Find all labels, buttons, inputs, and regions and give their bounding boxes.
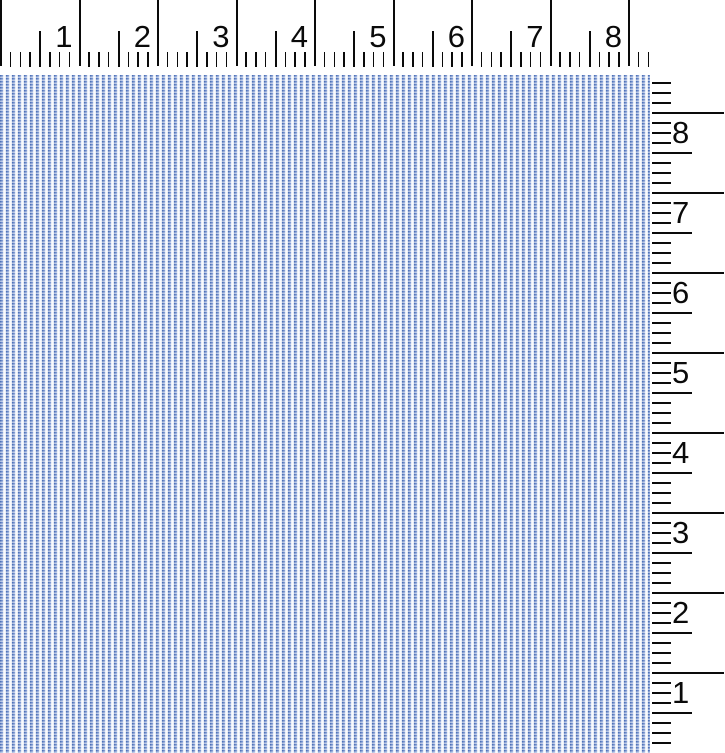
ruler-number-right-8: 8 xyxy=(672,117,689,148)
ruler-number-top-4: 4 xyxy=(270,21,308,52)
ruler-tick xyxy=(638,52,640,67)
ruler-tick xyxy=(461,52,463,67)
ruler-tick xyxy=(652,422,671,424)
ruler-tick xyxy=(652,262,671,264)
ruler-tick xyxy=(652,382,671,384)
ruler-tick xyxy=(652,392,692,394)
ruler-number-right-3: 3 xyxy=(672,517,689,548)
ruler-tick xyxy=(652,302,671,304)
ruler-tick xyxy=(652,612,671,614)
ruler-tick xyxy=(652,152,692,154)
ruler-tick xyxy=(599,52,601,67)
ruler-tick xyxy=(236,0,238,66)
ruler-tick xyxy=(652,592,724,594)
ruler-tick xyxy=(652,462,671,464)
ruler-tick xyxy=(652,632,692,634)
ruler-tick xyxy=(167,52,169,67)
ruler-tick xyxy=(652,492,671,494)
ruler-tick xyxy=(652,412,671,414)
ruler-tick xyxy=(652,692,671,694)
ruler-tick xyxy=(216,52,218,67)
ruler-tick xyxy=(652,402,671,404)
ruler-tick xyxy=(652,362,671,364)
ruler-number-top-7: 7 xyxy=(506,21,544,52)
ruler-tick xyxy=(226,52,228,67)
ruler-tick xyxy=(652,342,671,344)
ruler-tick xyxy=(579,52,581,67)
ruler-tick xyxy=(652,552,692,554)
ruler-tick xyxy=(652,182,671,184)
ruler-tick xyxy=(652,712,692,714)
ruler-tick xyxy=(652,202,671,204)
ruler-tick xyxy=(652,192,724,194)
ruler-tick xyxy=(652,92,671,94)
ruler-number-top-3: 3 xyxy=(192,21,230,52)
ruler-number-right-7: 7 xyxy=(672,197,689,228)
ruler-tick xyxy=(652,452,671,454)
ruler-tick xyxy=(652,252,671,254)
ruler-tick xyxy=(569,52,571,67)
ruler-tick xyxy=(652,112,724,114)
ruler-vertical-inches: 87654321 xyxy=(652,75,725,753)
ruler-tick xyxy=(137,52,139,67)
ruler-tick xyxy=(324,52,326,67)
ruler-tick xyxy=(652,742,671,744)
ruler-tick xyxy=(334,52,336,67)
ruler-tick xyxy=(245,52,247,67)
ruler-tick xyxy=(157,0,159,66)
ruler-tick xyxy=(500,52,502,67)
ruler-tick xyxy=(652,322,671,324)
ruler-tick xyxy=(343,52,345,67)
ruler-number-right-5: 5 xyxy=(672,357,689,388)
ruler-number-top-8: 8 xyxy=(584,21,622,52)
ruler-tick xyxy=(88,52,90,67)
ruler-tick xyxy=(652,642,671,644)
ruler-tick xyxy=(652,562,671,564)
ruler-tick xyxy=(652,292,671,294)
ruler-tick xyxy=(652,482,671,484)
ruler-tick xyxy=(652,702,671,704)
ruler-tick xyxy=(49,52,51,67)
ruler-tick xyxy=(59,52,61,67)
ruler-tick xyxy=(285,52,287,67)
ruler-tick xyxy=(652,502,671,504)
ruler-tick xyxy=(652,442,671,444)
ruler-tick xyxy=(520,52,522,67)
ruler-tick xyxy=(652,232,692,234)
ruler-tick xyxy=(652,82,671,84)
ruler-tick xyxy=(652,132,671,134)
ruler-tick xyxy=(412,52,414,67)
ruler-tick xyxy=(652,102,671,104)
ruler-tick xyxy=(69,52,71,67)
ruler-tick xyxy=(628,0,630,66)
ruler-tick xyxy=(618,52,620,67)
ruler-tick xyxy=(108,52,110,67)
ruler-tick xyxy=(481,52,483,67)
fabric-swatch xyxy=(0,75,650,753)
ruler-tick xyxy=(422,52,424,67)
ruler-tick xyxy=(442,52,444,67)
ruler-tick xyxy=(540,52,542,67)
ruler-tick xyxy=(128,52,130,67)
ruler-tick xyxy=(652,122,671,124)
ruler-tick xyxy=(0,0,2,66)
ruler-tick xyxy=(451,52,453,67)
ruler-number-right-2: 2 xyxy=(672,597,689,628)
ruler-tick xyxy=(206,52,208,67)
ruler-tick xyxy=(491,52,493,67)
ruler-tick xyxy=(652,432,724,434)
ruler-tick xyxy=(363,52,365,67)
ruler-number-top-2: 2 xyxy=(113,21,151,52)
ruler-tick xyxy=(652,622,671,624)
ruler-tick xyxy=(147,52,149,67)
ruler-tick xyxy=(652,512,724,514)
ruler-tick xyxy=(186,52,188,67)
ruler-tick xyxy=(652,312,692,314)
ruler-tick xyxy=(652,732,671,734)
ruler-number-right-6: 6 xyxy=(672,277,689,308)
ruler-tick xyxy=(652,652,671,654)
ruler-tick xyxy=(652,722,671,724)
ruler-tick xyxy=(471,0,473,66)
ruler-number-top-5: 5 xyxy=(349,21,387,52)
ruler-tick xyxy=(652,662,671,664)
ruler-tick xyxy=(652,522,671,524)
ruler-number-top-1: 1 xyxy=(35,21,73,52)
ruler-tick xyxy=(652,212,671,214)
ruler-tick xyxy=(652,602,671,604)
ruler-tick xyxy=(177,52,179,67)
ruler-tick xyxy=(648,52,650,67)
ruler-tick xyxy=(294,52,296,67)
ruler-tick xyxy=(79,0,81,66)
ruler-tick xyxy=(29,52,31,67)
ruler-tick xyxy=(652,222,671,224)
ruler-tick xyxy=(10,52,12,67)
ruler-tick xyxy=(652,172,671,174)
ruler-tick xyxy=(98,52,100,67)
ruler-tick xyxy=(652,472,692,474)
ruler-tick xyxy=(20,52,22,67)
fabric-swatch-photo: 12345678 87654321 xyxy=(0,0,725,753)
ruler-horizontal-inches: 12345678 xyxy=(0,0,652,70)
ruler-tick xyxy=(652,272,724,274)
ruler-tick xyxy=(652,332,671,334)
ruler-tick xyxy=(652,142,671,144)
ruler-number-right-4: 4 xyxy=(672,437,689,468)
ruler-tick xyxy=(265,52,267,67)
ruler-tick xyxy=(652,542,671,544)
ruler-number-right-1: 1 xyxy=(672,677,689,708)
ruler-tick xyxy=(652,672,724,674)
ruler-tick xyxy=(652,282,671,284)
ruler-tick xyxy=(530,52,532,67)
ruler-tick xyxy=(314,0,316,66)
ruler-tick xyxy=(652,372,671,374)
ruler-tick xyxy=(652,682,671,684)
ruler-tick xyxy=(652,162,671,164)
ruler-tick xyxy=(393,0,395,66)
ruler-tick xyxy=(652,572,671,574)
ruler-tick xyxy=(373,52,375,67)
ruler-tick xyxy=(255,52,257,67)
ruler-tick xyxy=(550,0,552,66)
ruler-tick xyxy=(402,52,404,67)
ruler-tick xyxy=(608,52,610,67)
ruler-tick xyxy=(559,52,561,67)
ruler-number-top-6: 6 xyxy=(427,21,465,52)
ruler-tick xyxy=(383,52,385,67)
ruler-tick xyxy=(652,352,724,354)
ruler-tick xyxy=(652,582,671,584)
ruler-tick xyxy=(652,242,671,244)
ruler-tick xyxy=(652,532,671,534)
ruler-tick xyxy=(304,52,306,67)
